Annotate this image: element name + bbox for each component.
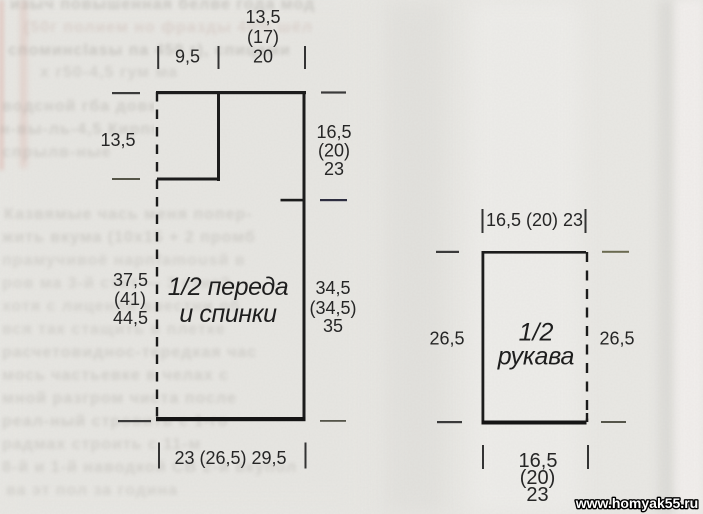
svg-text:1/2 переда: 1/2 переда bbox=[168, 273, 289, 301]
svg-text:23: 23 bbox=[324, 159, 344, 179]
svg-text:(20): (20) bbox=[318, 141, 350, 161]
svg-text:(41): (41) bbox=[114, 289, 146, 309]
svg-text:(17): (17) bbox=[247, 27, 279, 47]
svg-text:44,5: 44,5 bbox=[113, 308, 148, 328]
svg-text:23 (26,5) 29,5: 23 (26,5) 29,5 bbox=[174, 448, 286, 468]
svg-text:www.homyak55.ru: www.homyak55.ru bbox=[575, 495, 698, 511]
svg-text:(34,5): (34,5) bbox=[309, 298, 356, 318]
svg-text:16,5 (20) 23: 16,5 (20) 23 bbox=[486, 210, 583, 230]
svg-text:35: 35 bbox=[323, 316, 343, 336]
svg-text:16,5: 16,5 bbox=[316, 122, 351, 142]
svg-text:рукава: рукава bbox=[497, 343, 575, 371]
svg-text:26,5: 26,5 bbox=[429, 329, 464, 349]
svg-text:13,5: 13,5 bbox=[100, 130, 135, 150]
svg-text:20: 20 bbox=[253, 47, 273, 67]
svg-text:26,5: 26,5 bbox=[599, 329, 634, 349]
svg-text:37,5: 37,5 bbox=[113, 270, 148, 290]
svg-text:и спинки: и спинки bbox=[179, 300, 277, 328]
svg-text:9,5: 9,5 bbox=[175, 47, 200, 67]
svg-text:13,5: 13,5 bbox=[245, 7, 280, 27]
svg-text:23: 23 bbox=[526, 484, 548, 506]
svg-text:34,5: 34,5 bbox=[315, 278, 350, 298]
